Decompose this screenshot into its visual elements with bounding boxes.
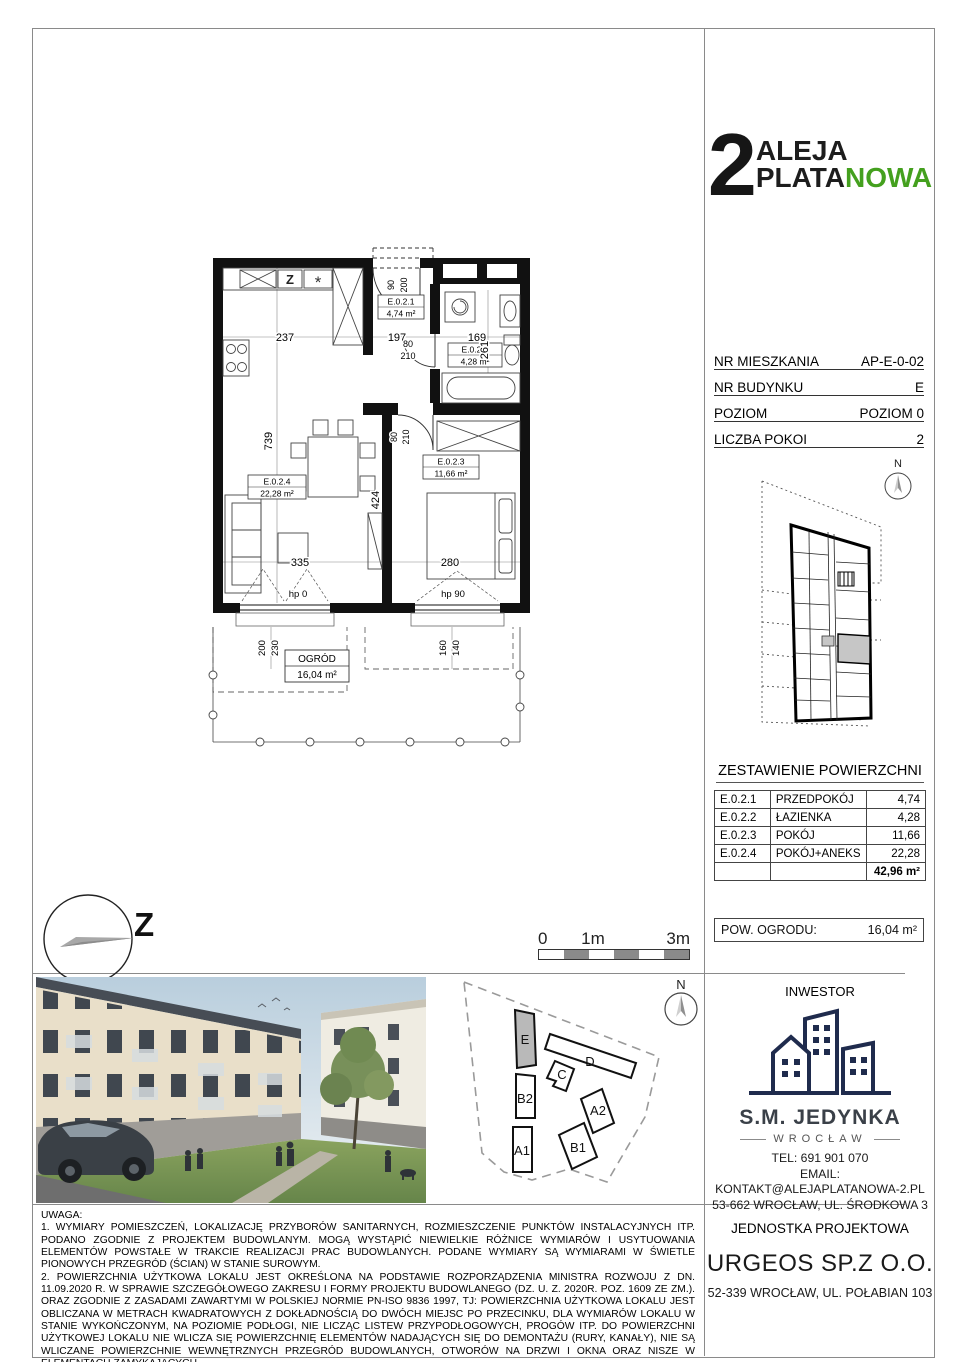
stairs-hatch (838, 572, 854, 586)
svg-text:E.0.2.3: E.0.2.3 (438, 457, 465, 467)
photo-divider (32, 973, 905, 974)
table-total-row: 42,96 m² (715, 863, 926, 881)
room-label-bedroom: E.0.2.3 11,66 m² (423, 455, 479, 479)
brand-logo: 2 ALEJA PLATANOWA (712, 105, 928, 225)
room-code: E.0.2.4 (715, 845, 771, 863)
investor-name: S.M. JEDYNKA (705, 1106, 935, 1130)
table-row: E.0.2.4 POKÓJ+ANEKS 22,28 (715, 845, 926, 863)
logo-words: ALEJA PLATANOWA (756, 138, 932, 191)
svg-text:160: 160 (438, 640, 449, 656)
scale-3m: 3m (666, 930, 690, 947)
north-compass-icon: N (665, 977, 697, 1025)
investor-city: WROCŁAW (705, 1133, 935, 1145)
room-name: POKÓJ (770, 827, 866, 845)
dash-left (740, 1139, 766, 1140)
table-row: E.0.2.1 PRZEDPOKÓJ 4,74 (715, 791, 926, 809)
designer-name: URGEOS SP.Z O.O. (705, 1250, 935, 1278)
svg-text:N: N (676, 977, 685, 992)
building-outline (791, 525, 871, 721)
dash-right (874, 1139, 900, 1140)
room-code: E.0.2.3 (715, 827, 771, 845)
west-compass-icon (42, 893, 142, 985)
svg-text:80: 80 (389, 432, 399, 442)
room-label-living: E.0.2.4 22,28 m² (248, 475, 306, 499)
window-sills (236, 613, 504, 626)
investor-title: INWESTOR (705, 984, 935, 999)
info-value: AP-E-0-02 (861, 354, 924, 369)
north-compass-icon: N (885, 458, 911, 499)
svg-text:OGRÓD: OGRÓD (298, 652, 336, 665)
total-area: 42,96 m² (866, 863, 926, 881)
svg-text:16,04 m²: 16,04 m² (297, 670, 337, 681)
svg-text:280: 280 (441, 557, 459, 569)
svg-text:140: 140 (451, 640, 462, 656)
west-compass-letter: Z (134, 906, 154, 944)
floorplan-sheet: 2 ALEJA PLATANOWA NR MIESZKANIA AP-E-0-0… (0, 0, 963, 1362)
areas-table: E.0.2.1 PRZEDPOKÓJ 4,74 E.0.2.2 ŁAZIENKA… (714, 790, 926, 881)
svg-text:210: 210 (400, 351, 415, 361)
svg-text:335: 335 (291, 557, 309, 569)
svg-text:80: 80 (403, 339, 413, 349)
highlighted-unit (838, 634, 870, 664)
info-value: 2 (916, 432, 924, 447)
svg-text:261: 261 (479, 341, 491, 359)
room-area: 4,74 (866, 791, 926, 809)
table-row: E.0.2.3 POKÓJ 11,66 (715, 827, 926, 845)
logo-word2a: PLATA (756, 162, 845, 193)
logo-number: 2 (708, 128, 753, 203)
info-row-room-count: LICZBA POKOI 2 (714, 422, 924, 448)
room-area: 11,66 (866, 827, 926, 845)
svg-text:hp 90: hp 90 (441, 589, 465, 600)
svg-text:E: E (521, 1032, 530, 1047)
room-area: 4,28 (866, 809, 926, 827)
areas-table-title: ZESTAWIENIE POWIERZCHNI (705, 763, 935, 783)
apartment-info-table: NR MIESZKANIA AP-E-0-02 NR BUDYNKU E POZ… (714, 344, 924, 448)
svg-text:4,74 m²: 4,74 m² (387, 309, 416, 319)
legal-notes: UWAGA: 1. WYMIARY POMIESZCZEŃ, LOKALIZAC… (33, 1206, 703, 1356)
room-labels: E.0.2.1 4,74 m² E.0.2.2 4,28 m² E.0.2.3 … (248, 295, 502, 499)
empty-cell (770, 863, 866, 881)
sink-z-mark: Z (286, 272, 294, 287)
garden-label: OGRÓD 16,04 m² (285, 650, 349, 682)
investor-section: INWESTOR S.M. JEDYNKA WROCŁAW (705, 977, 935, 1204)
areas-title-rule (716, 782, 924, 783)
info-value: E (915, 380, 924, 395)
svg-text:200: 200 (257, 640, 268, 656)
room-name: PRZEDPOKÓJ (770, 791, 866, 809)
svg-text:424: 424 (370, 491, 382, 509)
svg-text:B1: B1 (570, 1140, 586, 1155)
svg-text:22,28 m²: 22,28 m² (260, 489, 294, 499)
room-name: POKÓJ+ANEKS (770, 845, 866, 863)
garden-boundary (213, 627, 513, 692)
svg-text:C: C (557, 1067, 566, 1082)
svg-text:200: 200 (399, 277, 409, 292)
garden-area-box: POW. OGRODU: 16,04 m² (714, 918, 924, 942)
investor-email: KONTAKT@ALEJAPLATANOWA-2.PL (705, 1182, 935, 1198)
designer-address: 52-339 WROCŁAW, UL. POŁABIAN 103 (705, 1286, 935, 1300)
building-key-plan: N (712, 450, 932, 758)
info-row-level: POZIOM POZIOM 0 (714, 396, 924, 422)
notes-item-2: 2. POWIERZCHNIA UŻYTKOWA LOKALU JEST OKR… (41, 1272, 695, 1362)
info-label: POZIOM (714, 406, 767, 421)
logo-word2: PLATANOWA (756, 165, 932, 192)
info-label: NR BUDYNKU (714, 380, 803, 395)
scale-0: 0 (538, 930, 547, 947)
svg-text:237: 237 (276, 332, 294, 344)
designer-title: JEDNOSTKA PROJEKTOWA (705, 1221, 935, 1236)
scale-bar-labels: 0 1m 3m (538, 930, 690, 947)
scale-1m: 1m (581, 930, 605, 947)
info-label: LICZBA POKOI (714, 432, 807, 447)
scale-bar: 0 1m 3m (538, 930, 690, 960)
svg-text:E.0.2.1: E.0.2.1 (388, 297, 415, 307)
logo-word1: ALEJA (756, 138, 932, 165)
svg-text:11,66 m²: 11,66 m² (435, 469, 468, 479)
room-area: 22,28 (866, 845, 926, 863)
svg-text:A1: A1 (514, 1143, 530, 1158)
cooktop-mark: * (315, 273, 322, 292)
areas-title-text: ZESTAWIENIE POWIERZCHNI (718, 763, 922, 779)
svg-text:210: 210 (401, 429, 411, 444)
fence-posts (209, 671, 524, 746)
garden-area-value: 16,04 m² (868, 923, 917, 937)
investor-city-text: WROCŁAW (773, 1133, 866, 1145)
empty-cell (715, 863, 771, 881)
notes-item-1: 1. WYMIARY POMIESZCZEŃ, LOKALIZACJĘ PRZY… (41, 1222, 695, 1271)
logo-word2b: NOWA (845, 162, 932, 193)
room-label-bathroom: E.0.2.2 4,28 m² (448, 343, 502, 367)
svg-text:B2: B2 (517, 1091, 533, 1106)
building-render-photo (36, 977, 426, 1203)
svg-text:N: N (894, 458, 902, 470)
site-map: E D C B2 A2 A1 B1 N (434, 977, 703, 1203)
svg-text:739: 739 (263, 432, 275, 450)
room-label-hall: E.0.2.1 4,74 m² (378, 295, 424, 319)
svg-text:E.0.2.4: E.0.2.4 (264, 477, 291, 487)
info-row-apartment-number: NR MIESZKANIA AP-E-0-02 (714, 344, 924, 370)
highlighted-unit-part (822, 636, 834, 646)
room-code: E.0.2.1 (715, 791, 771, 809)
svg-text:hp 0: hp 0 (289, 589, 308, 600)
investor-email-label: EMAIL: (705, 1167, 935, 1183)
svg-text:90: 90 (386, 280, 396, 290)
room-code: E.0.2.2 (715, 809, 771, 827)
garden-area-label: POW. OGRODU: (721, 923, 817, 937)
notes-title: UWAGA: (41, 1210, 695, 1222)
scale-bar-segments (538, 949, 690, 960)
svg-text:230: 230 (270, 640, 281, 656)
svg-text:D: D (585, 1054, 594, 1069)
svg-text:A2: A2 (590, 1103, 606, 1118)
bedroom-furniture (427, 421, 520, 579)
info-row-building-number: NR BUDYNKU E (714, 370, 924, 396)
info-value: POZIOM 0 (859, 406, 924, 421)
table-row: E.0.2.2 ŁAZIENKA 4,28 (715, 809, 926, 827)
room-name: ŁAZIENKA (770, 809, 866, 827)
investor-phone: TEL: 691 901 070 (705, 1151, 935, 1167)
designer-section: JEDNOSTKA PROJEKTOWA URGEOS SP.Z O.O. 52… (705, 1205, 935, 1357)
info-label: NR MIESZKANIA (714, 354, 819, 369)
apartment-floor-plan: Z * (150, 245, 570, 765)
investor-logo-icon (745, 1001, 895, 1099)
